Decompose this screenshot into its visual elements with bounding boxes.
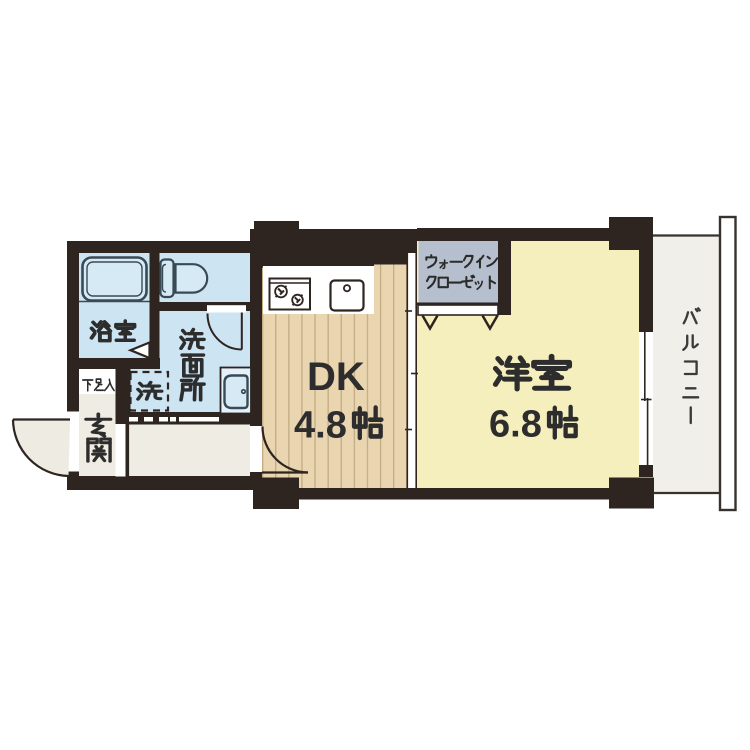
svg-text:6.8: 6.8 [489, 404, 542, 446]
svg-text:4.8: 4.8 [294, 405, 347, 447]
svg-text:DK: DK [307, 355, 365, 399]
